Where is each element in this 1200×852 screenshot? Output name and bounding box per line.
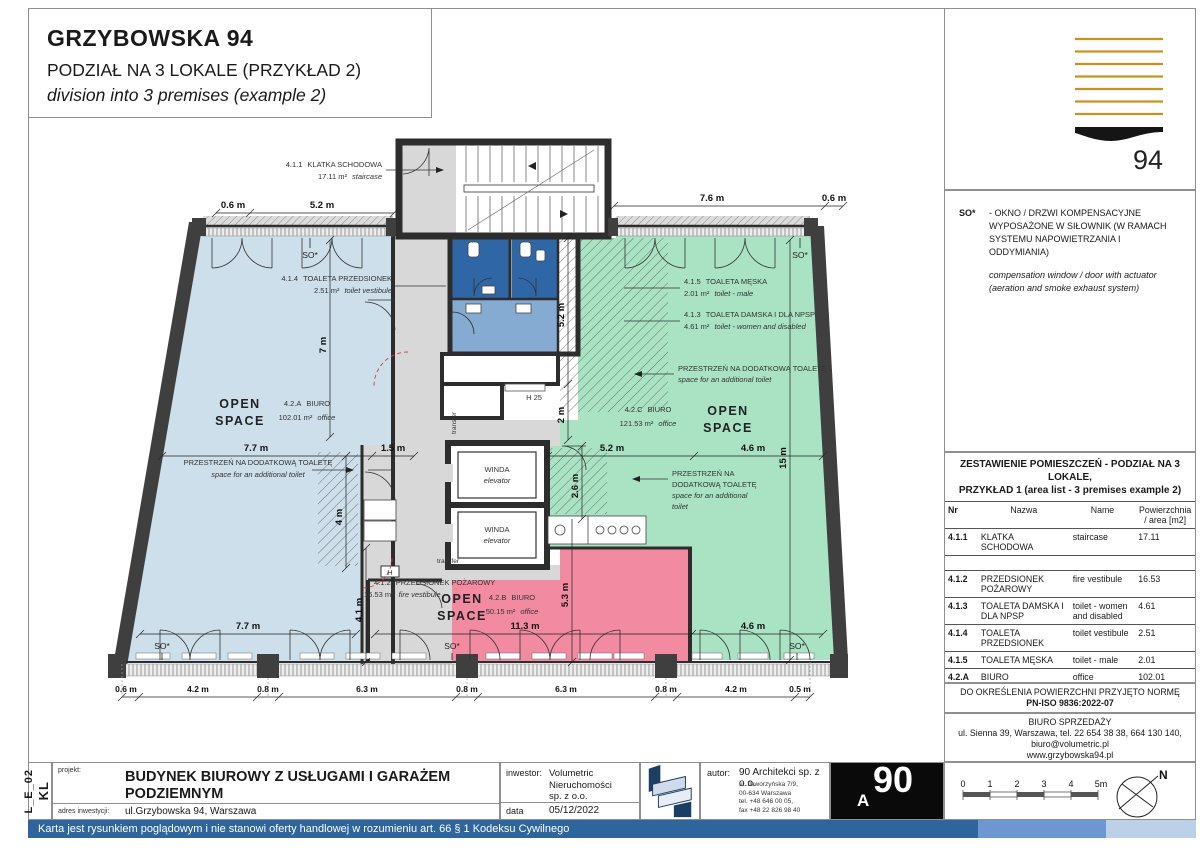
investor-label: inwestor: [506,768,542,778]
note-pl: PRZESTRZEŃ NA [672,469,735,478]
dim-label: 11.3 m [510,621,539,632]
dim-label: 5.2 m [600,443,624,454]
drawing-code-box: L_E_02 KL nr rysunku [28,762,52,820]
h-label: H [387,568,392,577]
room-name-en: toilet - male [714,289,753,298]
cell-area: 16.53 [1135,571,1195,598]
room-name-pl: BIURO [511,593,535,602]
dim-label: 5.3 m [560,583,571,607]
dim-label: 0.8 m [655,684,677,694]
cell-nr [945,556,978,571]
room-name-pl: KLATKA SCHODOWA [307,160,382,169]
elevator-label-en: elevator [484,476,511,485]
cell-area: 2.01 [1135,652,1195,669]
room-name-pl: TOALETA DAMSKA I DLA NPSP [706,310,815,319]
cell-nazwa: PRZEDSIONEK POŻAROWY [978,571,1070,598]
investor-line: Volumetric [549,768,612,780]
room-id: 4.1.3 [684,310,701,319]
dim-label: 0.8 m [257,684,279,694]
room-name-pl: TOALETA PRZEDSIONEK [303,274,392,283]
dim-label: 15 m [778,447,789,469]
author-address-line: tel. +48 646 00 05, [739,798,800,807]
open-space-label: OPEN [441,592,482,606]
elevators [444,443,547,567]
cell-area: 2.51 [1135,625,1195,652]
author-label: autor: [707,768,730,778]
room-id: 4.1.2 [374,578,391,587]
author-box: autor: 90 Architekci sp. z o.o. ul. Jawo… [700,762,830,820]
scale-north-box: 0 1 2 3 4 5m N [944,762,1196,820]
title-block: GRZYBOWSKA 94 PODZIAŁ NA 3 LOKALE (PRZYK… [28,8,432,118]
table-row: 4.1.4 TOALETA PRZEDSIONEK toilet vestibu… [945,625,1195,652]
dim-label: 7.7 m [236,621,260,632]
room-id: 4.1.5 [684,277,701,286]
dim-label: 5.2 m [556,303,567,327]
author-address: ul. Jaworzyńska 7/9, 00-634 Warszawa tel… [739,781,800,815]
address-label: adres inwestycji: [58,808,109,815]
svg-text:4.2.CBIURO: 4.2.CBIURO [625,405,672,414]
room-name-en: fire vestibule [399,590,441,599]
svg-text:16.53 m²fire vestibule: 16.53 m²fire vestibule [364,590,441,599]
so-label: SO* [302,250,318,260]
table-row: 4.1.1 KLATKA SCHODOWA staircase 17.11 [945,529,1195,556]
dim-label: 5.2 m [310,200,334,211]
drawing-sheet: 0.6 m 5.2 m 7.6 m 0.6 m 7 m 7.7 m 1.5 m … [0,0,1200,852]
north-label: N [1159,768,1168,782]
cell-nr: 4.1.1 [945,529,978,556]
dim-label: 4.2 m [187,684,209,694]
floor-plan: 0.6 m 5.2 m 7.6 m 0.6 m 7 m 7.7 m 1.5 m … [28,8,944,762]
dim-label: 1.5 m [381,443,405,454]
scale-tick-label: 3 [1041,779,1046,789]
room-name-pl: PRZEDSIONEK POŻAROWY [396,578,496,587]
open-space-label: SPACE [215,414,265,428]
note-en: toilet [672,502,689,511]
dim-label: 7.7 m [244,443,268,454]
table-title-line2: PRZYKŁAD 1 (area list - 3 premises examp… [947,484,1193,497]
open-space-label: SPACE [703,421,753,435]
cell-nazwa: TOALETA MĘSKA [978,652,1070,669]
logo-number: 94 [1133,145,1163,175]
date-value: 05/12/2022 [549,805,599,816]
dim-label: 4.2 m [725,684,747,694]
col-header-nazwa: Nazwa [978,502,1070,529]
open-space-label: SPACE [437,609,487,623]
note-pl: DODATKOWĄ TOALETĘ [672,480,757,489]
grzybowska-94-logo: 94 [945,9,1195,189]
author-logo-box: 90 A [830,762,944,820]
room-id: 4.2.C [625,405,644,414]
sales-office-title: BIURO SPRZEDAŻY [945,717,1195,728]
cell-nazwa: TOALETA DAMSKA I DLA NPSP [978,598,1070,625]
svg-text:4.61 m²toilet - women and disa: 4.61 m²toilet - women and disabled [684,322,807,331]
date-row: data 05/12/2022 [501,802,639,819]
table-row: 4.1.2 PRZEDSIONEK POŻAROWY fire vestibul… [945,571,1195,598]
so-label: SO* [792,250,808,260]
dim-label: 2.6 m [570,474,581,498]
so-note-box: SO* - OKNO / DRZWI KOMPENSACYJNE WYPOSAŻ… [944,190,1196,452]
room-area: 102.01 m² [279,413,313,422]
sheet-code: L_E_02 [23,769,35,814]
dim-label: 0.5 m [789,684,811,694]
dim-label: 6.3 m [356,684,378,694]
dim-label: 6.3 m [555,684,577,694]
room-name-en: office [658,419,676,428]
note-pl: PRZESTRZEŃ NA DODATKOWĄ TOALETĘ [678,364,827,373]
note-en: space for an additional [672,491,748,500]
room-name-en: office [317,413,335,422]
svg-text:121.53 m²office: 121.53 m²office [620,419,677,428]
cell-area: 4.61 [1135,598,1195,625]
svg-text:2.51 m²toilet vestibule: 2.51 m²toilet vestibule [314,286,392,295]
sales-office-email: biuro@volumetric.pl [945,739,1195,750]
scale-tick-label: 4 [1068,779,1073,789]
room-area: 16.53 m² [364,590,394,599]
cell-area: 17.11 [1135,529,1195,556]
h25-label: H 25 [526,393,542,402]
dim-label: 4 m [334,509,345,525]
sales-office-website: www.grzybowska94.pl [945,750,1195,761]
room-area: 2.51 m² [314,286,340,295]
author-address-line: 00-634 Warszawa [739,790,800,799]
svg-text:4.2.ABIURO: 4.2.ABIURO [284,399,330,408]
dim-label: 0.8 m [456,684,478,694]
cell-name: toilet vestibule [1070,625,1136,652]
dim-label: 7 m [318,337,329,353]
so-note-pl: - OKNO / DRZWI KOMPENSACYJNE WYPOSAŻONE … [989,207,1179,259]
room-area: 121.53 m² [620,419,654,428]
cell-nr: 4.1.4 [945,625,978,652]
brand-logo-box: 94 [944,8,1196,190]
cell-name: fire vestibule [1070,571,1136,598]
area-table-box: ZESTAWIENIE POMIESZCZEŃ - PODZIAŁ NA 3 L… [944,452,1196,683]
table-row-separator [945,556,1195,571]
svg-text:4.1.1KLATKA SCHODOWA: 4.1.1KLATKA SCHODOWA [286,160,382,169]
cell-nazwa: KLATKA SCHODOWA [978,529,1070,556]
room-name-en: staircase [352,172,382,181]
sales-office-address: ul. Sienna 39, Warszawa, tel. 22 654 38 … [945,728,1195,739]
so-note-en: compensation window / door with actuator… [989,269,1169,295]
scale-bar: 0 1 2 3 4 5m [960,779,1107,800]
open-space-label: OPEN [219,397,260,411]
room-id: 4.2.B [489,593,507,602]
scale-tick-label: 2 [1014,779,1019,789]
drawing-code: KL [36,781,51,800]
cell-nr: 4.1.5 [945,652,978,669]
table-title-line1: ZESTAWIENIE POMIESZCZEŃ - PODZIAŁ NA 3 L… [947,458,1193,484]
svg-text:2.01 m²toilet - male: 2.01 m²toilet - male [684,289,753,298]
so-term: SO* [959,207,989,259]
volumetric-logo [641,763,699,819]
date-label: data [506,806,524,816]
scale-tick-label: 1 [987,779,992,789]
col-header-area: Powierzchnia / area [m2] [1135,502,1195,529]
note-pl: PRZESTRZEŃ NA DODATKOWĄ TOALETĘ [184,458,333,467]
investment-address: ul.Grzybowska 94, Warszawa [125,806,256,817]
cell-area [1135,556,1195,571]
norm-note-box: DO OKREŚLENIA POWIERZCHNI PRZYJĘTO NORMĘ… [944,683,1196,713]
cell-name: toilet - women and disabled [1070,598,1136,625]
author-address-line: fax +48 22 826 98 40 [739,807,800,816]
note-en: space for an additional toilet [211,470,305,479]
project-box: projekt: BUDYNEK BIUROWY Z USŁUGAMI I GA… [52,762,500,820]
disclaimer-bar-mid [978,820,1106,838]
elevator-label-pl: WINDA [485,525,510,534]
dim-label: 4.6 m [741,443,765,454]
author-logo-number: 90 [873,762,913,801]
room-area: 50.15 m² [486,607,516,616]
so-label: SO* [154,641,170,651]
elevator-label-en: elevator [484,536,511,545]
table-row: 4.1.5 TOALETA MĘSKA toilet - male 2.01 [945,652,1195,669]
investor-line: sp. z o.o. [549,791,612,803]
col-header-name: Name [1070,502,1136,529]
cell-name: staircase [1070,529,1136,556]
cell-nr: 4.1.2 [945,571,978,598]
note-en: space for an additional toilet [678,375,772,384]
room-area: 4.61 m² [684,322,710,331]
transfer-label: transfer [437,558,460,565]
project-label: projekt: [58,767,81,774]
scale-tick-label: 0 [960,779,965,789]
cell-name [1070,556,1136,571]
room-id: 4.1.4 [281,274,298,283]
room-name-pl: BIURO [648,405,672,414]
svg-text:50.15 m²office: 50.15 m²office [486,607,539,616]
room-name-en: office [520,607,538,616]
norm-line1: DO OKREŚLENIA POWIERZCHNI PRZYJĘTO NORMĘ [945,687,1195,698]
room-area: 17.11 m² [318,172,348,181]
dim-label: 0.6 m [221,200,245,211]
dim-label: 4.6 m [741,621,765,632]
project-name: BUDYNEK BIUROWY Z USŁUGAMI I GARAŻEM POD… [125,769,485,803]
cell-nazwa: TOALETA PRZEDSIONEK [978,625,1070,652]
cell-nazwa [978,556,1070,571]
investor-logo-box [640,762,700,820]
svg-text:17.11 m²staircase: 17.11 m²staircase [318,172,382,181]
scale-tick-label: 5m [1095,779,1108,789]
dim-label: 0.6 m [115,684,137,694]
room-id: 4.1.1 [286,160,303,169]
open-space-label: OPEN [707,404,748,418]
subtitle-en: division into 3 premises (example 2) [47,85,431,106]
svg-text:4.2.BBIURO: 4.2.BBIURO [489,593,535,602]
disclaimer-bar: Karta jest rysunkiem poglądowym i nie st… [28,820,978,838]
subtitle-pl: PODZIAŁ NA 3 LOKALE (PRZYKŁAD 2) [47,60,431,81]
shaft-room [442,354,558,418]
address-row: adres inwestycji: ul.Grzybowska 94, Wars… [53,803,499,819]
col-header-nr: Nr [945,502,978,529]
svg-text:4.1.5TOALETA MĘSKA: 4.1.5TOALETA MĘSKA [684,277,767,286]
svg-text:102.01 m²office: 102.01 m²office [279,413,336,422]
sales-office-box: BIURO SPRZEDAŻY ul. Sienna 39, Warszawa,… [944,713,1196,762]
room-name-pl: BIURO [306,399,330,408]
cell-nr: 4.1.3 [945,598,978,625]
norm-line2: PN-ISO 9836:2022-07 [945,698,1195,709]
so-label: SO* [444,641,460,651]
scale-bar-and-north: 0 1 2 3 4 5m N [945,763,1195,819]
cell-name: toilet - male [1070,652,1136,669]
author-logo-letter: A [857,791,869,811]
disclaimer-bar-light [1106,820,1196,838]
transfer-label: transfer [451,411,458,434]
room-id: 4.2.A [284,399,302,408]
elevator-label-pl: WINDA [485,465,510,474]
so-label: SO* [789,641,805,651]
dim-label: 4.1 m [354,598,365,622]
author-address-line: ul. Jaworzyńska 7/9, [739,781,800,790]
table-header-row: Nr Nazwa Name Powierzchnia / area [m2] [945,502,1195,529]
svg-text:4.1.4TOALETA PRZEDSIONEK: 4.1.4TOALETA PRZEDSIONEK [281,274,392,283]
investor-line: Nieruchomości [549,780,612,792]
room-name-en: toilet - women and disabled [714,322,806,331]
investor-name: Volumetric Nieruchomości sp. z o.o. [549,768,612,803]
north-arrow-icon: N [1117,768,1168,817]
room-area: 2.01 m² [684,289,710,298]
table-row: 4.1.3 TOALETA DAMSKA I DLA NPSP toilet -… [945,598,1195,625]
dim-label: 2 m [556,407,567,423]
dim-label: 0.6 m [822,193,846,204]
room-name-pl: TOALETA MĘSKA [706,277,767,286]
room-name-en: toilet vestibule [344,286,392,295]
page-title: GRZYBOWSKA 94 [47,25,431,52]
investor-box: inwestor: Volumetric Nieruchomości sp. z… [500,762,640,820]
dim-label: 7.6 m [700,193,724,204]
